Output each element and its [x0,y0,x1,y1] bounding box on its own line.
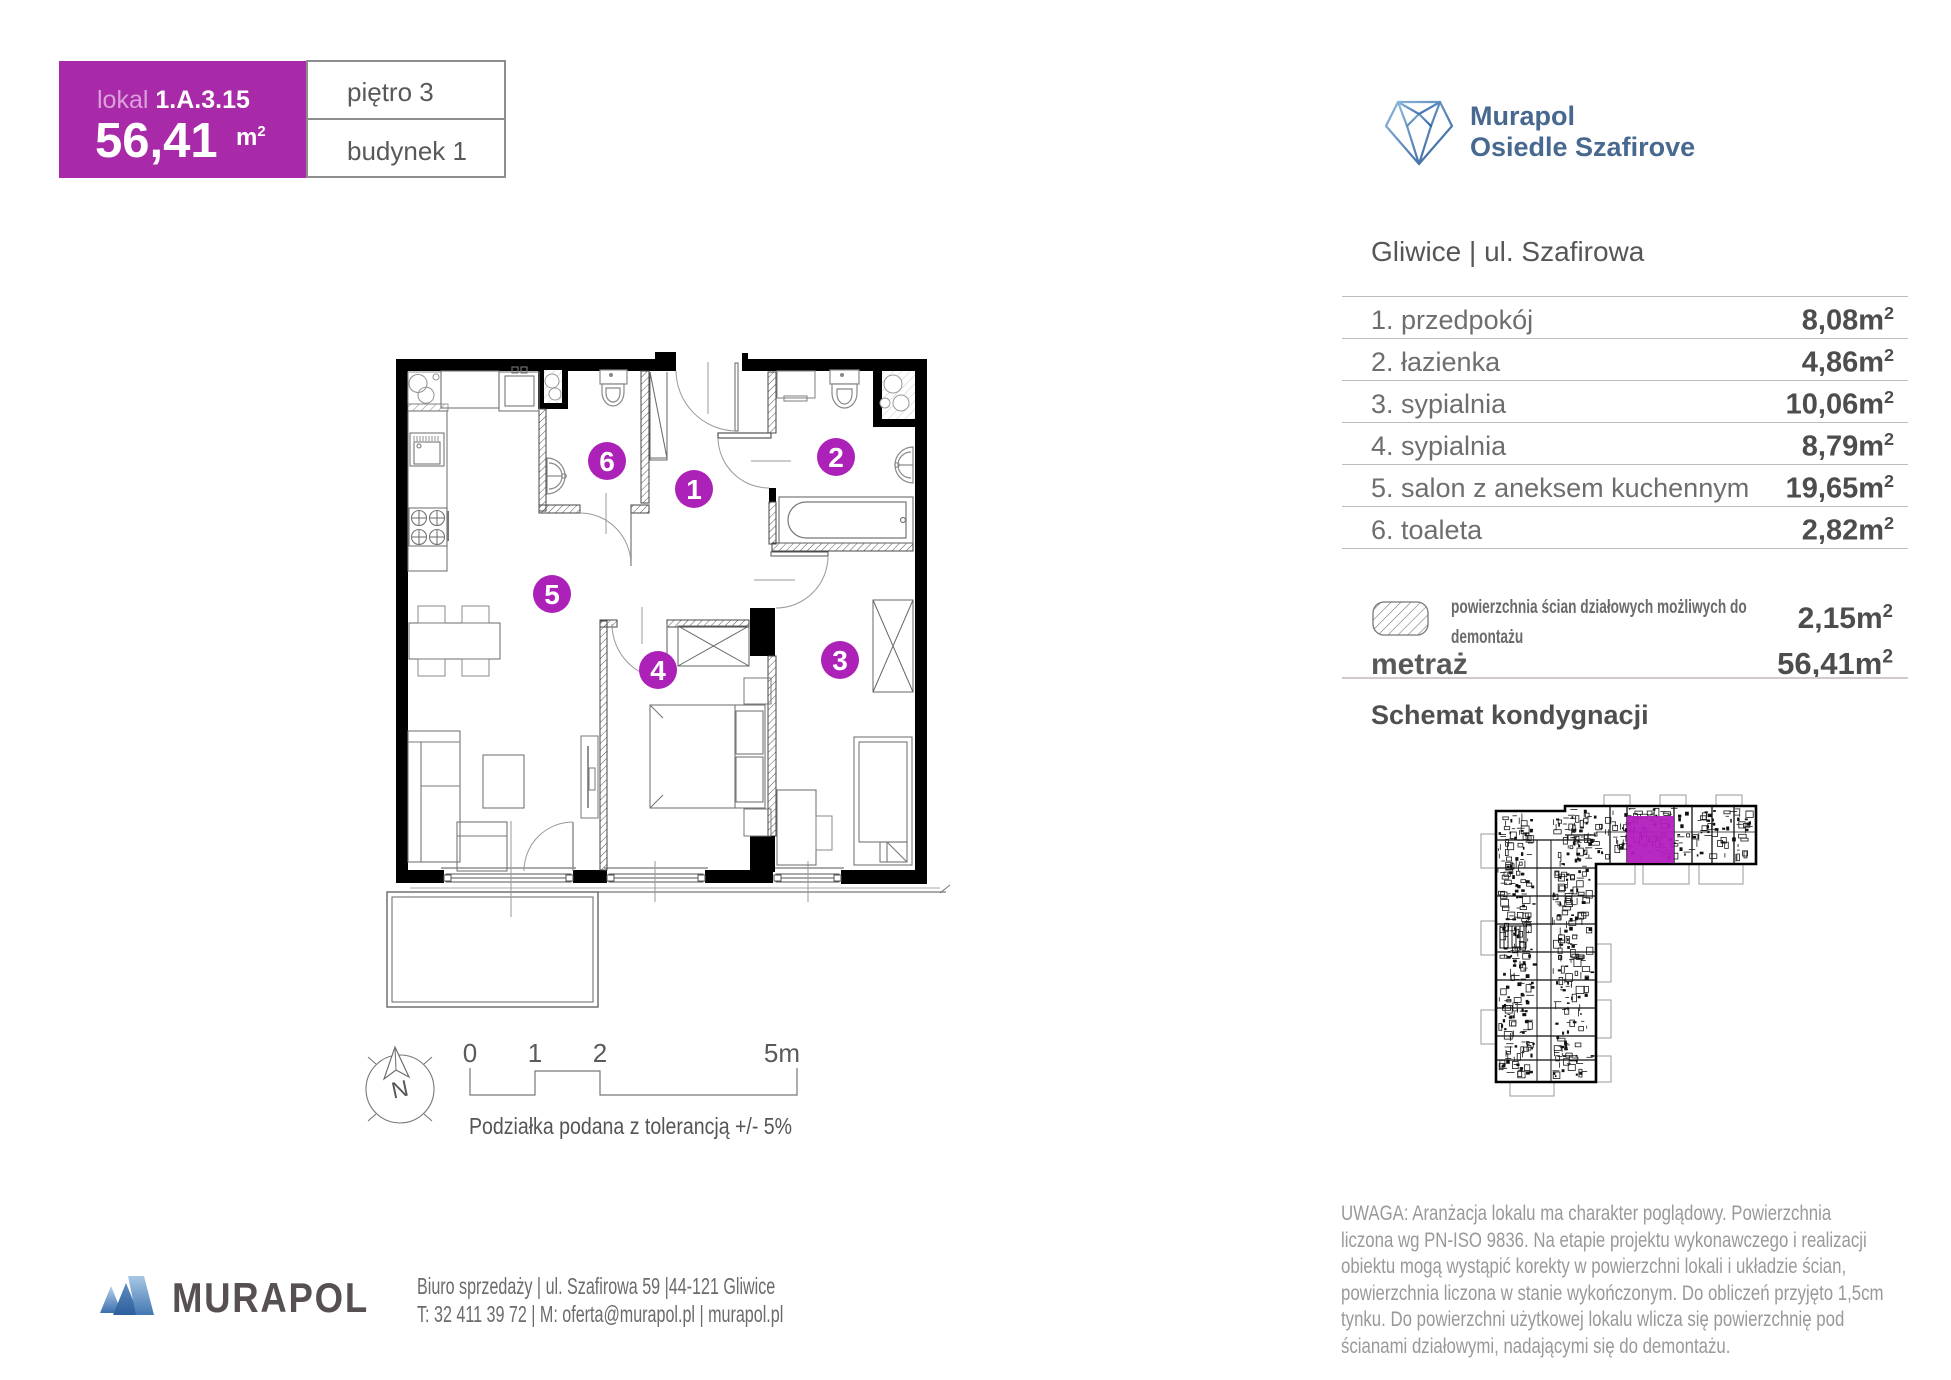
svg-text:Podziałka podana z tolerancją: Podziałka podana z tolerancją +/- 5% [469,1113,792,1139]
svg-text:5m: 5m [764,1038,800,1068]
svg-text:N: N [389,1075,411,1104]
svg-text:5: 5 [544,579,560,610]
svg-text:6: 6 [599,446,615,477]
svg-text:4: 4 [650,655,666,686]
svg-text:3: 3 [832,645,848,676]
svg-text:1: 1 [686,474,702,505]
svg-text:2: 2 [593,1038,607,1068]
svg-text:2: 2 [828,442,844,473]
svg-text:1: 1 [528,1038,542,1068]
svg-text:0: 0 [463,1038,477,1068]
